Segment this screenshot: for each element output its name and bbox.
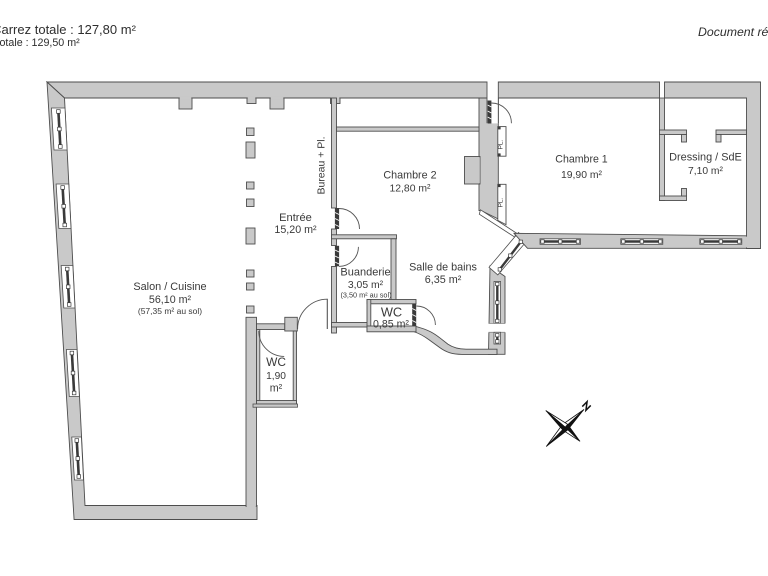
svg-text:Dressing / SdE: Dressing / SdE bbox=[669, 152, 742, 164]
svg-text:totale : 129,50 m²: totale : 129,50 m² bbox=[0, 37, 80, 49]
svg-text:19,90 m²: 19,90 m² bbox=[561, 170, 603, 181]
svg-text:WC: WC bbox=[381, 305, 402, 320]
svg-text:PL.: PL. bbox=[497, 197, 504, 207]
svg-text:m²: m² bbox=[270, 383, 283, 395]
svg-text:(3,50 m² au sol): (3,50 m² au sol) bbox=[340, 291, 391, 300]
svg-text:Bureau + Pl.: Bureau + Pl. bbox=[316, 136, 328, 194]
svg-text:3,05 m²: 3,05 m² bbox=[348, 280, 384, 291]
svg-text:PL.: PL. bbox=[497, 139, 504, 149]
svg-text:56,10 m²: 56,10 m² bbox=[149, 294, 192, 306]
svg-text:15,20 m²: 15,20 m² bbox=[274, 224, 317, 236]
svg-text:Buanderie: Buanderie bbox=[340, 267, 390, 279]
svg-text:7,10 m²: 7,10 m² bbox=[688, 166, 723, 177]
svg-text:Carrez totale : 127,80 m²: Carrez totale : 127,80 m² bbox=[0, 22, 137, 37]
svg-text:WC: WC bbox=[266, 355, 286, 369]
svg-text:1,90: 1,90 bbox=[266, 371, 286, 382]
svg-text:Chambre 2: Chambre 2 bbox=[383, 170, 436, 182]
svg-text:6,35 m²: 6,35 m² bbox=[425, 274, 462, 286]
svg-text:Salle de bains: Salle de bains bbox=[409, 262, 477, 274]
svg-text:Document réalisé: Document réalisé bbox=[698, 25, 768, 39]
svg-text:Salon / Cuisine: Salon / Cuisine bbox=[133, 281, 206, 293]
svg-text:(57,35 m² au sol): (57,35 m² au sol) bbox=[138, 306, 202, 316]
svg-text:12,80 m²: 12,80 m² bbox=[389, 184, 431, 195]
svg-text:0,85 m²: 0,85 m² bbox=[373, 319, 409, 331]
svg-text:Chambre 1: Chambre 1 bbox=[555, 154, 608, 166]
svg-text:Entrée: Entrée bbox=[279, 212, 312, 224]
